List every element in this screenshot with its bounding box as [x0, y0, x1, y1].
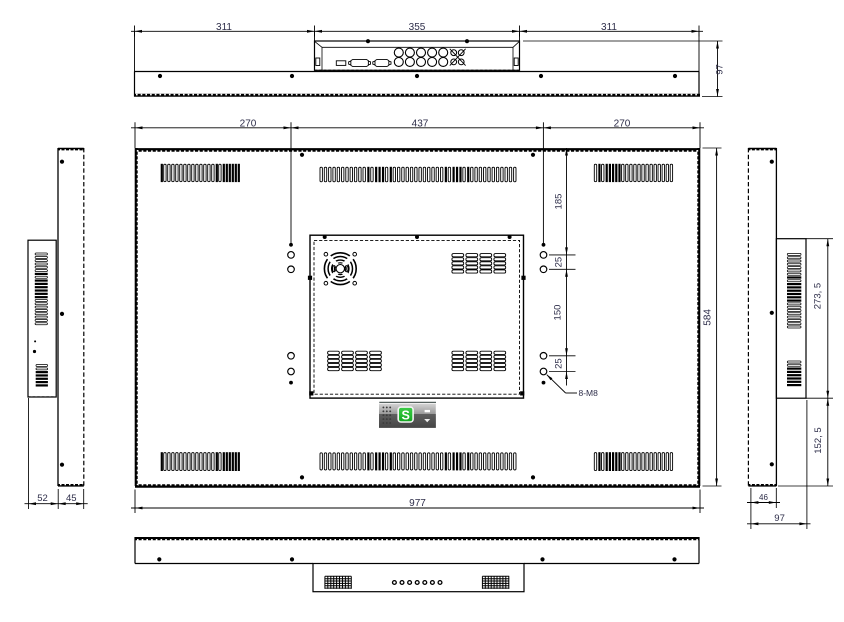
svg-text:584: 584 [703, 309, 714, 326]
svg-text:150: 150 [553, 305, 564, 321]
svg-text:311: 311 [216, 22, 232, 33]
svg-text:25: 25 [554, 257, 565, 268]
svg-text:S: S [402, 408, 410, 422]
svg-text:355: 355 [409, 22, 426, 33]
svg-text:97: 97 [774, 513, 785, 524]
svg-text:270: 270 [240, 118, 257, 129]
svg-text:52: 52 [37, 493, 48, 504]
svg-text:46: 46 [759, 493, 768, 502]
svg-text:977: 977 [409, 498, 426, 509]
svg-text:185: 185 [554, 194, 565, 210]
svg-text:97: 97 [715, 64, 726, 75]
svg-text:270: 270 [614, 118, 631, 129]
svg-text:8-M8: 8-M8 [579, 388, 599, 398]
svg-text:311: 311 [601, 22, 617, 33]
svg-text:152, 5: 152, 5 [813, 427, 824, 453]
svg-text:437: 437 [412, 118, 429, 129]
svg-text:45: 45 [66, 493, 77, 504]
svg-text:273, 5: 273, 5 [812, 283, 823, 309]
svg-text:25: 25 [554, 358, 565, 369]
